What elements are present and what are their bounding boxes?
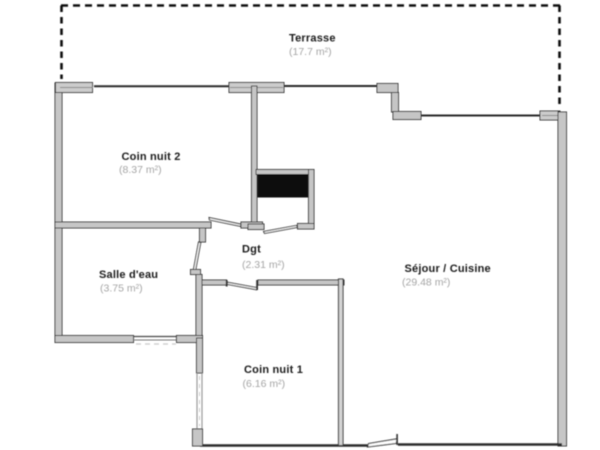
svg-text:(6.16 m²): (6.16 m²) bbox=[243, 378, 286, 390]
svg-text:(2.31 m²): (2.31 m²) bbox=[242, 259, 285, 271]
svg-text:Coin nuit 2: Coin nuit 2 bbox=[122, 151, 181, 163]
svg-text:Coin nuit 1: Coin nuit 1 bbox=[244, 364, 303, 376]
svg-text:(29.48 m²): (29.48 m²) bbox=[402, 277, 450, 289]
svg-text:(3.75 m²): (3.75 m²) bbox=[100, 283, 143, 295]
svg-text:(8.37 m²): (8.37 m²) bbox=[119, 164, 162, 176]
svg-text:(17.7 m²): (17.7 m²) bbox=[289, 46, 332, 58]
svg-text:Salle d'eau: Salle d'eau bbox=[99, 269, 158, 281]
svg-text:Dgt: Dgt bbox=[242, 244, 261, 256]
svg-text:Séjour / Cuisine: Séjour / Cuisine bbox=[405, 263, 491, 275]
svg-text:Terrasse: Terrasse bbox=[289, 33, 336, 45]
